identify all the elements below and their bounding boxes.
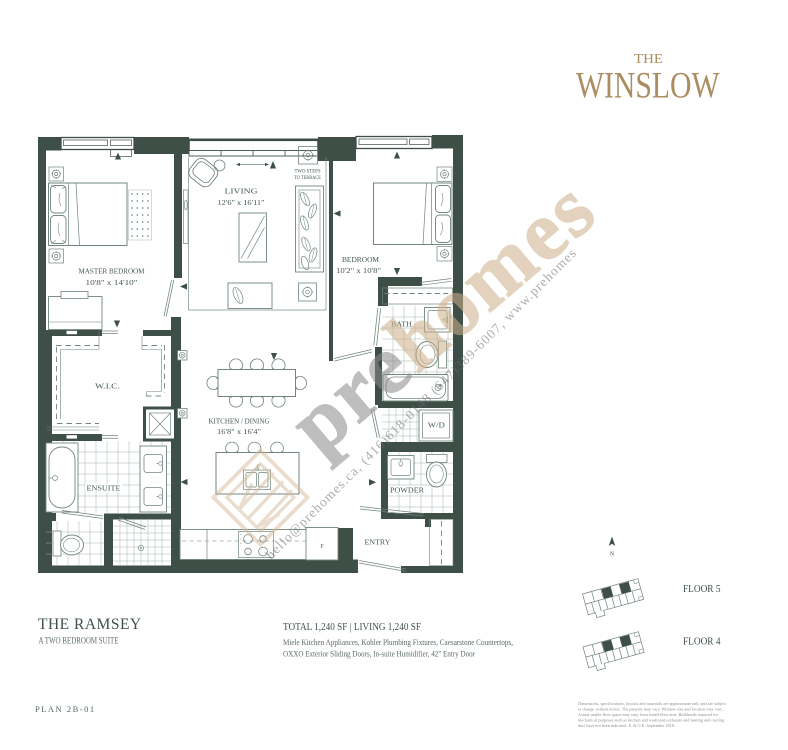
svg-text:THE RAMSEY: THE RAMSEY: [38, 616, 142, 633]
svg-text:TWO STEPS: TWO STEPS: [295, 170, 321, 175]
svg-text:W/D: W/D: [428, 421, 446, 430]
svg-text:WINSLOW: WINSLOW: [576, 66, 720, 107]
svg-text:10'8" x 14'10": 10'8" x 14'10": [86, 278, 138, 287]
svg-text:duct have not been indicated.: duct have not been indicated. E. & O.E. …: [578, 723, 675, 728]
svg-text:10'2" x 10'8": 10'2" x 10'8": [336, 266, 381, 275]
svg-text:ENTRY: ENTRY: [365, 538, 392, 547]
svg-text:FLOOR 4: FLOOR 4: [683, 637, 721, 648]
svg-text:OXXO Exterior Sliding Doors, I: OXXO Exterior Sliding Doors, In-suite Hu…: [283, 650, 475, 659]
svg-text:MASTER BEDROOM: MASTER BEDROOM: [79, 267, 145, 276]
svg-text:POWDER: POWDER: [390, 486, 425, 495]
svg-text:BEDROOM: BEDROOM: [342, 255, 379, 264]
svg-text:mechanical purposes such as ki: mechanical purposes such as kitchen and …: [578, 718, 725, 723]
svg-text:A TWO BEDROOM SUITE: A TWO BEDROOM SUITE: [39, 637, 119, 647]
svg-text:ENSUITE: ENSUITE: [87, 484, 121, 493]
svg-text:Miele Kitchen Appliances, Kohl: Miele Kitchen Appliances, Kohler Plumbin…: [283, 638, 513, 647]
svg-text:PLAN 2B-01: PLAN 2B-01: [35, 704, 96, 714]
svg-text:Actual usable floor space may: Actual usable floor space may vary from …: [578, 712, 719, 717]
svg-text:N: N: [610, 552, 615, 558]
svg-text:FLOOR 5: FLOOR 5: [683, 584, 721, 595]
svg-text:to change without notice. Tile: to change without notice. Tile patterns …: [578, 707, 723, 712]
svg-text:TOTAL 1,240 SF | LIVING: TOTAL 1,240 SF | LIVING 1,240 SF: [283, 622, 421, 633]
svg-text:12'6" x 16'11": 12'6" x 16'11": [218, 198, 265, 207]
svg-text:LIVING: LIVING: [225, 187, 259, 196]
svg-text:16'8" x 16'4": 16'8" x 16'4": [217, 427, 261, 436]
svg-text:W.I.C.: W.I.C.: [95, 382, 120, 391]
svg-text:TO TERRACE: TO TERRACE: [294, 176, 321, 181]
svg-text:KITCHEN / DINING: KITCHEN / DINING: [209, 417, 270, 426]
